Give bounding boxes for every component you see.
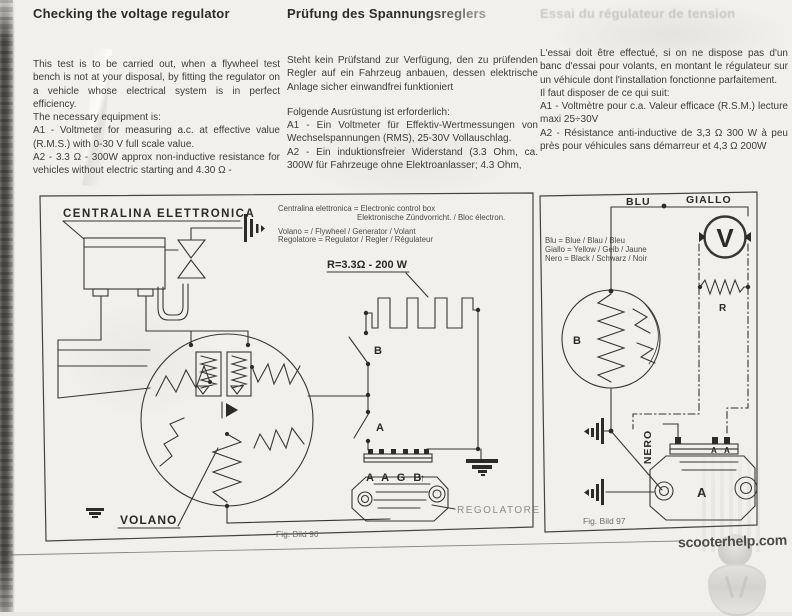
switch-blade (354, 413, 369, 438)
pickup-arrow-icon (226, 403, 238, 417)
arrow-up-icon: ↑ (420, 473, 425, 484)
blu-wire-label: BLU (626, 196, 651, 208)
flywheel-b-label: B (573, 335, 581, 347)
legend-line: Nero = Black / Schwarz / Noir (545, 254, 647, 263)
spark-gap-icon (178, 240, 205, 258)
legend-line: Elektronische Zündvorricht. / Bloc élect… (357, 213, 505, 222)
legend-line: Centralina elettronica = Electronic cont… (278, 204, 435, 213)
ground-icon (86, 508, 104, 518)
winding-zigzag (598, 294, 624, 382)
fig96-labels: CENTRALINA ELETTRONICA Centralina elettr… (63, 204, 541, 539)
nero-wire-label: NERO (642, 430, 654, 464)
switch-b-label: B (374, 345, 382, 357)
fig96-terminals-and-dots (86, 214, 498, 518)
fig97-diagram: BLU GIALLO Blu = Blue / Blau / Bleu Gial… (545, 194, 757, 526)
winding-zigzag (213, 434, 241, 502)
regolatore-label: REGOLATORE (457, 505, 541, 516)
ground-icon (466, 459, 498, 476)
resistor-symbol (366, 298, 478, 328)
legend-line: Blu = Blue / Blau / Bleu (545, 236, 625, 245)
fig96-caption: Fig. Bild 96 (276, 529, 319, 539)
wiring-diagrams: CENTRALINA ELETTRONICA Centralina elettr… (0, 0, 792, 612)
scanned-manual-page: Checking the voltage regulator This test… (0, 0, 792, 612)
centralina-label: CENTRALINA ELETTRONICA (63, 208, 255, 220)
terminal-labels: A A G B (366, 472, 424, 484)
switch-a-label: A (376, 422, 384, 434)
voltmeter-v-symbol: V (716, 223, 734, 253)
winding-zigzag (633, 309, 650, 333)
terminal-a-label: A (724, 446, 730, 455)
fig96-border (40, 193, 533, 541)
fig97-caption: Fig. Bild 97 (583, 516, 626, 526)
winding-zigzag (637, 343, 655, 363)
winding-zigzag (254, 428, 304, 450)
site-watermark: scooterhelp.com (678, 532, 787, 550)
ground-icon (584, 479, 604, 505)
control-box (84, 238, 165, 289)
winding-zigzag (160, 418, 184, 466)
volano-label: VOLANO (120, 513, 177, 527)
resistor-symbol (700, 280, 748, 294)
resistor-r-label: R (719, 303, 727, 314)
switch-blade (349, 337, 367, 362)
regulator-a-label: A (697, 485, 707, 500)
resistor-value-label: R=3.3Ω - 200 W (327, 259, 408, 271)
winding-zigzag (252, 364, 300, 384)
ground-icon (584, 418, 604, 444)
fig96-diagram: CENTRALINA ELETTRONICA Centralina elettr… (58, 204, 541, 539)
terminal-a-label: A (711, 446, 717, 455)
test-leads-dashdot (633, 244, 748, 435)
coil-icon (232, 356, 246, 388)
legend-line: Giallo = Yellow / Gelb / Jaune (545, 245, 647, 254)
legend-line: Regolatore = Regulator / Regler / Régula… (278, 235, 433, 244)
winding-zigzag (156, 366, 210, 396)
giallo-wire-label: GIALLO (686, 194, 732, 206)
page-fold-line (8, 541, 681, 555)
